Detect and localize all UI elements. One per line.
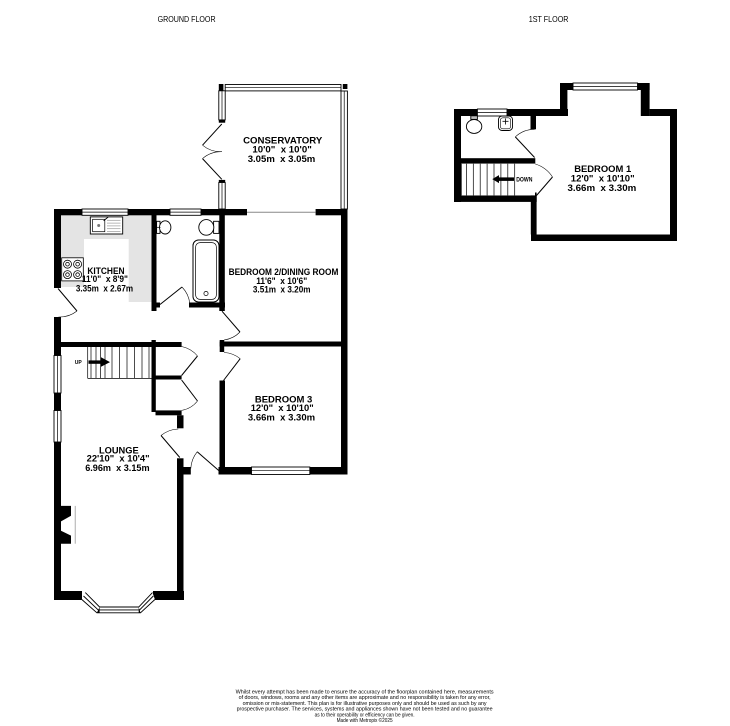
svg-text:3.51m x 3.20m: 3.51m x 3.20m (253, 284, 311, 295)
svg-text:UP: UP (75, 360, 83, 366)
svg-text:6.96m x 3.15m: 6.96m x 3.15m (85, 463, 149, 474)
svg-text:1ST FLOOR: 1ST FLOOR (529, 15, 569, 24)
svg-text:DOWN: DOWN (516, 176, 533, 183)
svg-text:Made with Metropix ©2025: Made with Metropix ©2025 (337, 717, 393, 724)
svg-text:GROUND FLOOR: GROUND FLOOR (158, 15, 216, 24)
svg-text:3.66m x 3.30m: 3.66m x 3.30m (248, 412, 315, 423)
svg-text:3.35m x 2.67m: 3.35m x 2.67m (76, 283, 133, 294)
svg-text:3.05m x 3.05m: 3.05m x 3.05m (248, 154, 316, 165)
svg-text:3.66m x 3.30m: 3.66m x 3.30m (568, 183, 637, 194)
